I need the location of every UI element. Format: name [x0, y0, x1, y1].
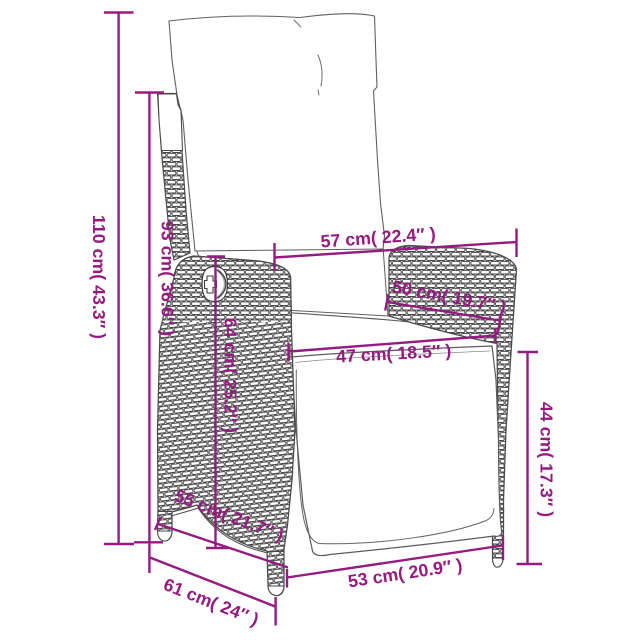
- svg-text:64 cm( 25.2″ ): 64 cm( 25.2″ ): [221, 318, 241, 433]
- svg-text:110 cm( 43.3″ ): 110 cm( 43.3″ ): [89, 215, 109, 339]
- svg-text:44 cm( 17.3″ ): 44 cm( 17.3″ ): [537, 402, 557, 517]
- svg-text:93 cm( 36.6″ ): 93 cm( 36.6″ ): [158, 221, 178, 336]
